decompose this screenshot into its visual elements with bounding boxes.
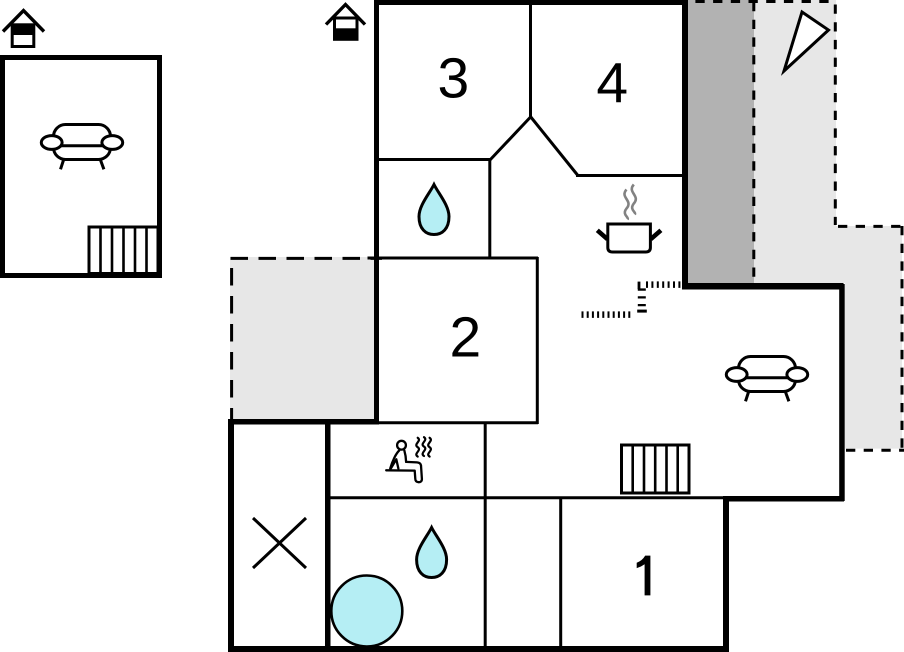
svg-text:3: 3 [437, 47, 469, 111]
svg-text:2: 2 [450, 306, 482, 370]
svg-text:4: 4 [596, 51, 628, 115]
